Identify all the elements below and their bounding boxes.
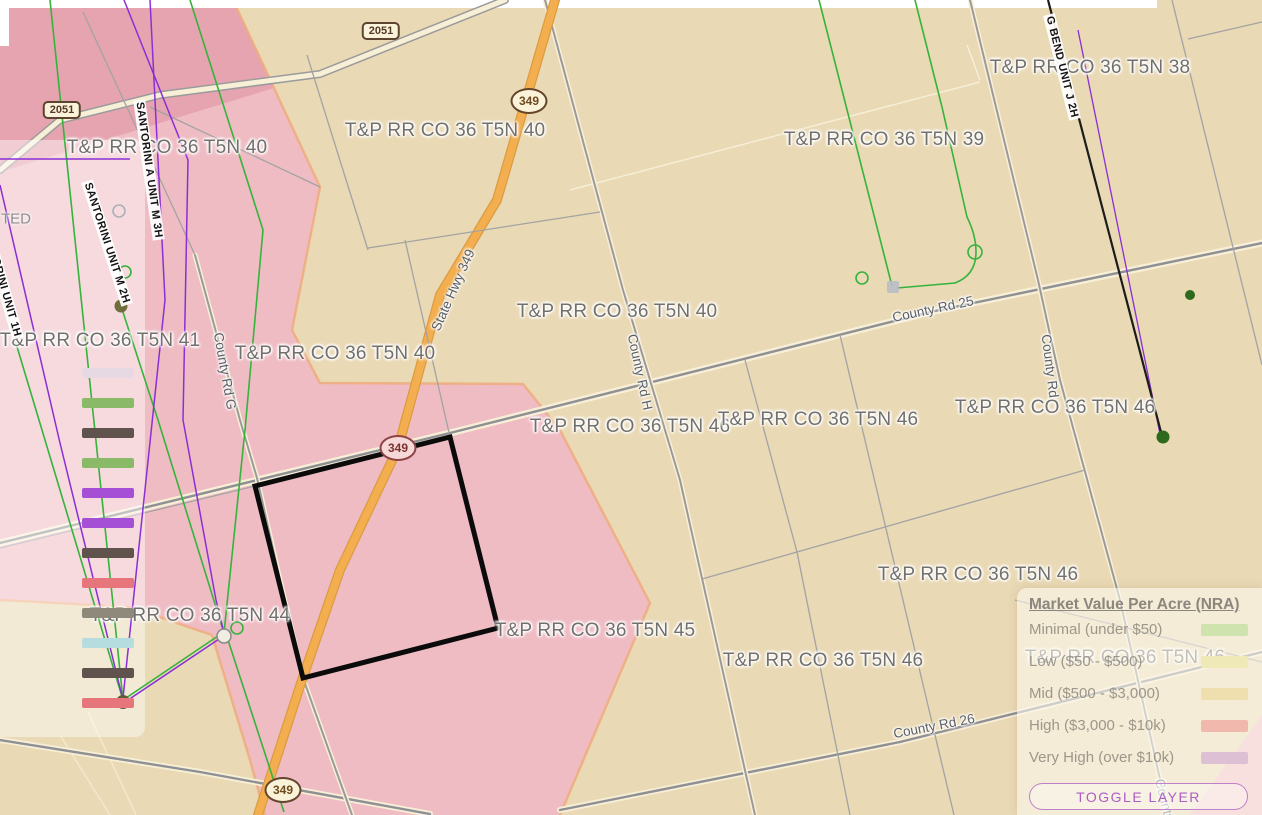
legend-item-swatch	[1201, 720, 1248, 732]
left-legend-swatch	[82, 548, 134, 558]
well-head-white	[217, 629, 231, 643]
parcel-label: T&P RR CO 36 T5N 40	[67, 137, 268, 159]
legend-item-label: Very High (over $10k)	[1029, 749, 1201, 766]
legend-item: Minimal (under $50)	[1029, 623, 1248, 636]
legend-items: Minimal (under $50) Low ($50 - $500) Mid…	[1029, 623, 1248, 764]
legend-item-swatch	[1201, 752, 1248, 764]
legend-item-swatch	[1201, 624, 1248, 636]
legend-item-label: High ($3,000 - $10k)	[1029, 717, 1201, 734]
market-value-legend: Market Value Per Acre (NRA) Minimal (und…	[1017, 588, 1262, 815]
parcel-label: T&P RR CO 36 T5N 40	[345, 120, 546, 142]
legend-item: Very High (over $10k)	[1029, 751, 1248, 764]
highway-shield: 2051	[362, 22, 400, 40]
left-legend-swatch	[82, 638, 134, 648]
legend-item: Mid ($500 - $3,000)	[1029, 687, 1248, 700]
parcel-label: T&P RR CO 36 T5N 38	[990, 57, 1191, 79]
legend-item-swatch	[1201, 656, 1248, 668]
partial-label: TED	[1, 211, 31, 228]
parcel-label: T&P RR CO 36 T5N 46	[530, 416, 731, 438]
map-edge-strip-top	[0, 0, 1157, 8]
parcel-label: T&P RR CO 36 T5N 41	[0, 330, 200, 352]
left-legend-swatch	[82, 398, 134, 408]
parcel-label: T&P RR CO 36 T5N 39	[784, 129, 985, 151]
well-head-darkgreen	[1185, 290, 1195, 300]
highway-shield: 2051	[43, 101, 81, 119]
legend-item-swatch	[1201, 688, 1248, 700]
left-legend-swatch	[82, 668, 134, 678]
left-legend-swatch	[82, 578, 134, 588]
map-edge-strip-left	[0, 0, 9, 46]
legend-item: High ($3,000 - $10k)	[1029, 719, 1248, 732]
legend-title: Market Value Per Acre (NRA)	[1029, 596, 1248, 614]
parcel-label: T&P RR CO 36 T5N 46	[955, 397, 1156, 419]
toggle-layer-button[interactable]: TOGGLE LAYER	[1029, 783, 1248, 810]
highway-shield: 349	[511, 88, 548, 114]
parcel-label: T&P RR CO 36 T5N 45	[495, 620, 696, 642]
legend-item: Low ($50 - $500)	[1029, 655, 1248, 668]
left-legend-swatch	[82, 698, 134, 708]
left-legend-swatch	[82, 488, 134, 498]
left-legend-swatch	[82, 458, 134, 468]
parcel-label: T&P RR CO 36 T5N 40	[235, 343, 436, 365]
left-legend-swatch	[82, 368, 134, 378]
legend-item-label: Low ($50 - $500)	[1029, 653, 1201, 670]
left-legend-swatch	[82, 608, 134, 618]
map-app: T&P RR CO 36 T5N 40T&P RR CO 36 T5N 40T&…	[0, 0, 1262, 815]
parcel-label: T&P RR CO 36 T5N 46	[878, 564, 1079, 586]
highway-shield: 349	[380, 435, 417, 461]
legend-item-label: Mid ($500 - $3,000)	[1029, 685, 1201, 702]
left-legend-swatch	[82, 518, 134, 528]
highway-shield: 349	[265, 777, 302, 803]
parcel-label: T&P RR CO 36 T5N 46	[718, 409, 919, 431]
well-head-darkgreen	[1157, 431, 1170, 444]
parcel-label: T&P RR CO 36 T5N 40	[517, 301, 718, 323]
parcel-label: T&P RR CO 36 T5N 46	[723, 650, 924, 672]
legend-item-label: Minimal (under $50)	[1029, 621, 1201, 638]
left-legend-swatch	[82, 428, 134, 438]
well-head-gray	[887, 281, 899, 293]
